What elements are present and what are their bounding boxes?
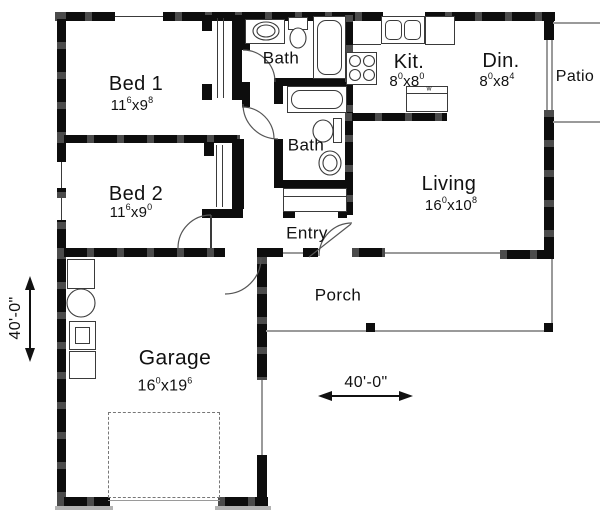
room-label-bed1: Bed 1	[109, 74, 163, 94]
dishwasher-label: w	[426, 86, 431, 93]
room-label-porch: Porch	[315, 287, 361, 304]
room-dims-bed2: 116x90	[110, 204, 153, 220]
room-label-living: Living	[422, 174, 477, 194]
room-label-entry: Entry	[286, 225, 328, 242]
bath2-sink-basin-inner	[323, 155, 337, 171]
room-label-garage: Garage	[139, 348, 211, 369]
dimension-arrow-top-head	[25, 276, 35, 290]
bath1-toilet-bowl	[290, 28, 306, 48]
room-dims-living: 160x108	[425, 197, 477, 213]
water-heater	[67, 289, 95, 317]
garage-door-arc	[225, 258, 261, 294]
dimension-depth-label: 40'-0"	[8, 296, 24, 339]
room-label-kitchen: Kit.	[394, 52, 425, 72]
room-label-dining: Din.	[482, 51, 519, 71]
room-dims-kitchen: 80x80	[389, 73, 424, 89]
floor-plan: Bed 1 116x98 Bed 2 116x90 Bath Bath Kit.…	[0, 0, 600, 519]
stove-burner	[350, 70, 361, 81]
dimension-arrow-right-head	[399, 391, 413, 401]
bath2-door-arc	[243, 104, 278, 139]
dimension-arrow-bottom-head	[25, 348, 35, 362]
dimension-arrow-horizontal-line	[330, 395, 401, 397]
room-label-patio: Patio	[556, 69, 594, 85]
bed1-door-arc	[242, 107, 274, 139]
dimension-arrow-left-head	[318, 391, 332, 401]
stove-burner	[350, 56, 361, 67]
dimension-arrow-vertical-line	[29, 288, 31, 350]
stove-burner	[364, 56, 375, 67]
room-dims-bed1: 116x98	[111, 97, 154, 113]
bath1-sink-basin-inner	[257, 25, 275, 37]
bed2-door-arc	[178, 215, 211, 248]
dimension-width-label: 40'-0"	[344, 375, 387, 391]
room-label-bath2: Bath	[288, 137, 325, 154]
room-dims-dining: 80x84	[479, 73, 514, 89]
room-label-bed2: Bed 2	[109, 184, 163, 204]
stove-burner	[364, 70, 375, 81]
room-dims-garage: 160x196	[137, 377, 192, 394]
room-label-bath1: Bath	[263, 50, 300, 67]
